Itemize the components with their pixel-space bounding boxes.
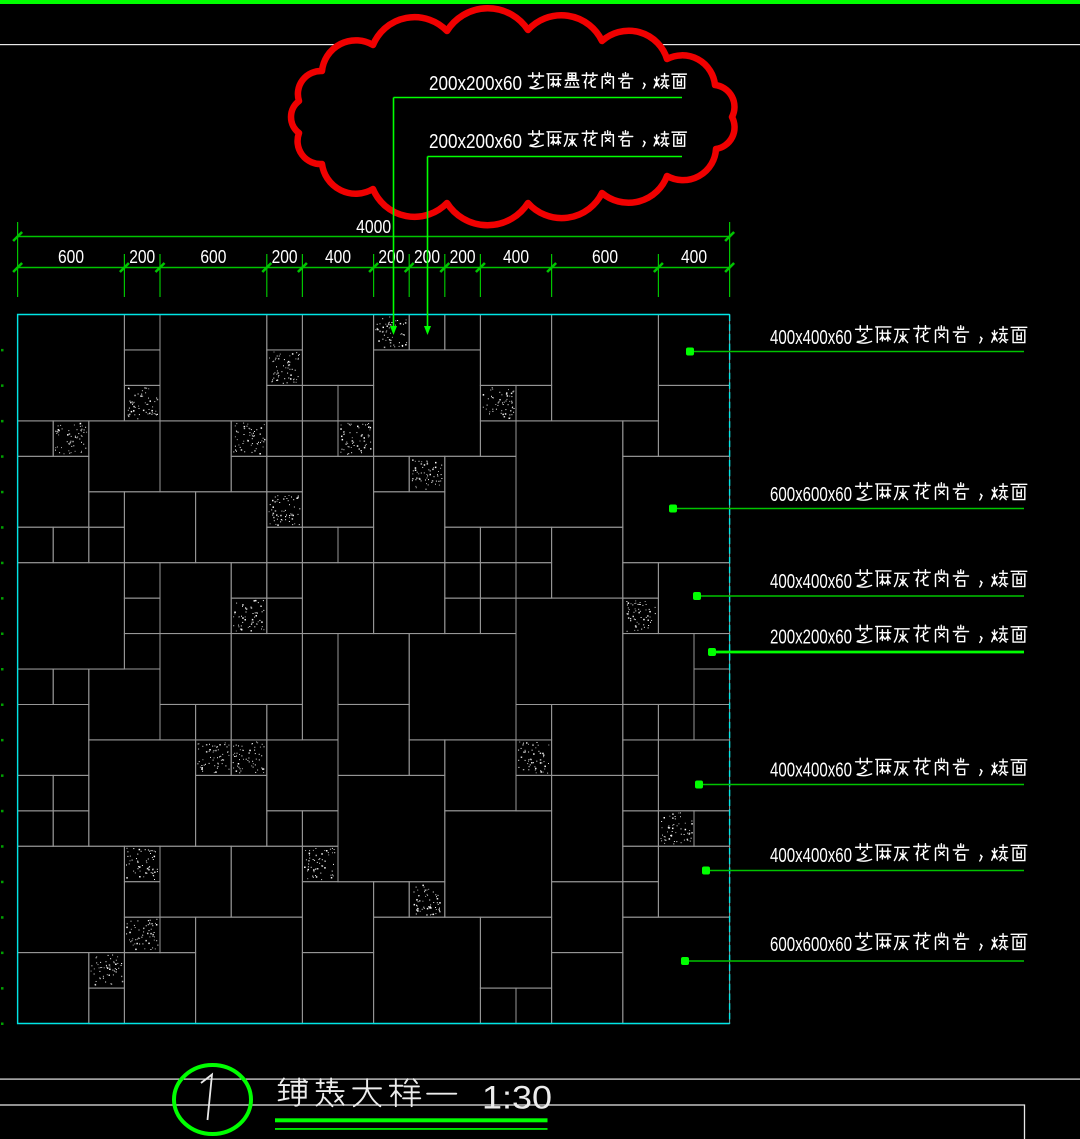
svg-text:600: 600: [200, 247, 226, 267]
svg-text:200: 200: [129, 247, 155, 267]
svg-text:400x400x60: 400x400x60: [770, 845, 852, 867]
svg-text:400: 400: [325, 247, 351, 267]
svg-text:1:30: 1:30: [482, 1080, 552, 1116]
svg-text:200x200x60: 200x200x60: [429, 131, 522, 153]
svg-text:600x600x60: 600x600x60: [770, 484, 852, 506]
svg-text:600: 600: [58, 247, 84, 267]
svg-text:400x400x60: 400x400x60: [770, 327, 852, 349]
svg-text:400x400x60: 400x400x60: [770, 571, 852, 593]
svg-text:400x400x60: 400x400x60: [770, 760, 852, 782]
svg-text:400: 400: [681, 247, 707, 267]
svg-text:200: 200: [450, 247, 476, 267]
svg-text:600: 600: [592, 247, 618, 267]
svg-text:200x200x60: 200x200x60: [770, 627, 852, 649]
svg-text:200x200x60: 200x200x60: [429, 73, 522, 95]
svg-text:600x600x60: 600x600x60: [770, 934, 852, 956]
svg-text:200: 200: [272, 247, 298, 267]
svg-text:400: 400: [503, 247, 529, 267]
svg-text:200: 200: [378, 247, 404, 267]
svg-text:4000: 4000: [356, 217, 391, 237]
